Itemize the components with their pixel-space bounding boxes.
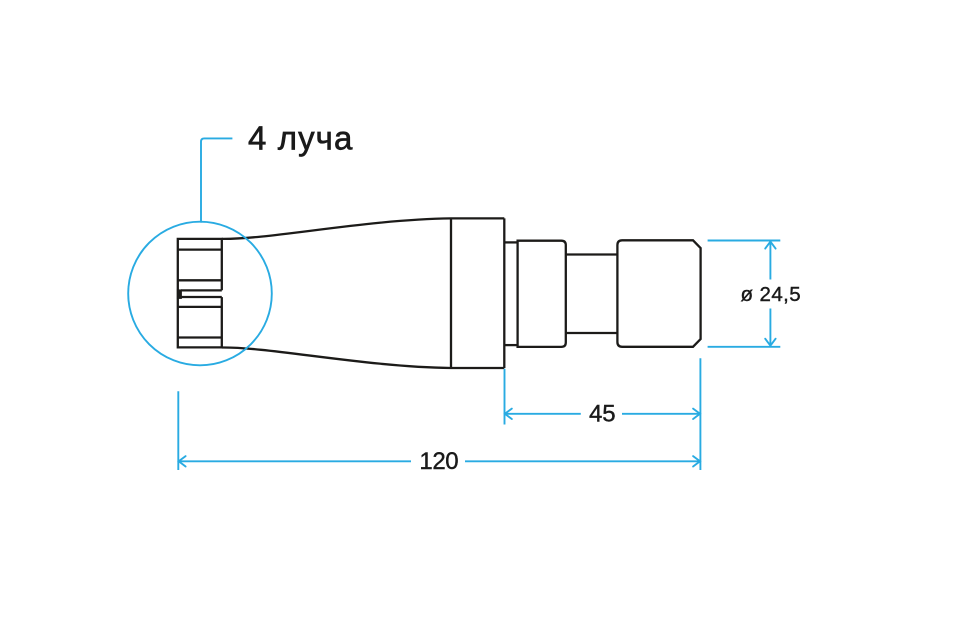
svg-text:45: 45 [589, 401, 616, 428]
svg-text:ø 24,5: ø 24,5 [741, 283, 802, 306]
svg-text:120: 120 [419, 448, 458, 475]
svg-text:4 луча: 4 луча [248, 119, 353, 156]
